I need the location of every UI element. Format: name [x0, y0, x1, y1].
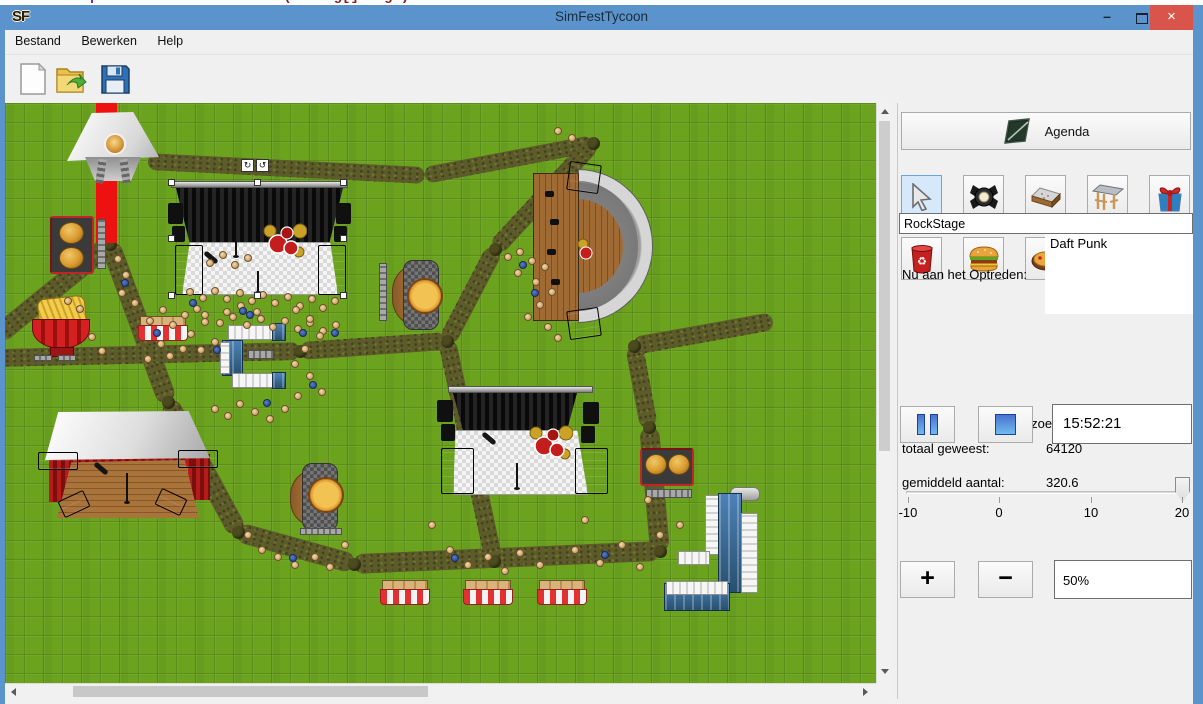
toolbar	[5, 55, 1193, 103]
pause-icon	[930, 414, 938, 435]
scrollbar-corner	[876, 683, 891, 699]
agenda-book-icon	[1003, 117, 1033, 145]
selection-handle[interactable]	[254, 292, 261, 299]
menu-help[interactable]: Help	[149, 30, 191, 48]
close-button[interactable]: ×	[1150, 5, 1193, 30]
minimize-button[interactable]: –	[1092, 5, 1122, 30]
scroll-down-icon[interactable]	[881, 669, 889, 674]
pause-button[interactable]	[900, 406, 955, 443]
tool-stage-floor[interactable]	[1025, 175, 1066, 218]
content-area: ↻ ↺ Agenda	[5, 103, 1193, 704]
selection-handle[interactable]	[340, 179, 347, 186]
map-horizontal-scrollbar[interactable]	[5, 683, 876, 699]
stop-button[interactable]	[978, 406, 1033, 443]
stage-floor-icon	[1030, 184, 1062, 210]
spotlight-icon	[969, 183, 999, 211]
speed-slider-track[interactable]	[906, 491, 1188, 494]
zoom-out-button[interactable]: −	[978, 561, 1033, 598]
selection-handle[interactable]	[168, 292, 175, 299]
selection-layer	[5, 103, 876, 683]
horizontal-scroll-thumb[interactable]	[73, 686, 428, 697]
map-vertical-scrollbar[interactable]	[876, 103, 891, 683]
slider-label-0: 0	[981, 505, 1017, 520]
pause-icon	[917, 414, 925, 435]
titlebar[interactable]: SF SimFestTycoon – ×	[0, 5, 1203, 30]
selection-handle[interactable]	[168, 179, 175, 186]
stop-icon	[995, 414, 1016, 435]
scroll-left-icon[interactable]	[11, 688, 16, 696]
cursor-icon	[909, 183, 935, 211]
selection-handle[interactable]	[254, 179, 261, 186]
zoom-level-field[interactable]: 50%	[1054, 560, 1192, 599]
slider-tick	[1182, 497, 1183, 503]
menubar: Bestand Bewerken Help	[5, 30, 1193, 55]
avg-visitors-label: gemiddeld aantal:	[902, 475, 1005, 490]
tool-select-cursor[interactable]	[901, 175, 942, 218]
save-file-button[interactable]	[97, 61, 133, 97]
app-window: SF SimFestTycoon – × Bestand Bewerken He…	[0, 5, 1203, 704]
scroll-up-icon[interactable]	[881, 109, 889, 114]
tool-spotlight[interactable]	[963, 175, 1004, 218]
gift-icon	[1155, 182, 1185, 212]
tool-gift[interactable]	[1149, 175, 1190, 218]
total-visitors-label: totaal geweest:	[902, 441, 989, 456]
code-line-number: 180	[52, 0, 75, 4]
maximize-icon	[1136, 13, 1148, 24]
selection-handle[interactable]	[340, 292, 347, 299]
map-viewport[interactable]: ↻ ↺	[5, 103, 876, 683]
slider-label-20: 20	[1164, 505, 1200, 520]
stage-roof-icon	[1092, 183, 1124, 211]
zoom-in-button[interactable]: +	[900, 561, 955, 598]
new-file-button[interactable]	[15, 61, 51, 97]
vertical-scroll-thumb[interactable]	[879, 121, 890, 451]
agenda-label: Agenda	[1045, 124, 1090, 139]
tool-stage-roof[interactable]	[1087, 175, 1128, 218]
svg-text:♻: ♻	[917, 256, 927, 268]
now-performing-label: Nu aan het Optreden:	[902, 267, 1027, 282]
selection-handle[interactable]	[340, 235, 347, 242]
slider-label-10: 10	[1073, 505, 1109, 520]
save-floppy-icon	[97, 61, 133, 97]
slider-tick	[1091, 497, 1092, 503]
scroll-right-icon[interactable]	[863, 688, 868, 696]
new-file-icon	[15, 61, 51, 97]
window-title: SimFestTycoon	[0, 9, 1203, 24]
slider-label-neg10: -10	[890, 505, 926, 520]
slider-tick	[908, 497, 909, 503]
menu-bestand[interactable]: Bestand	[7, 30, 69, 48]
open-folder-icon	[53, 61, 89, 97]
menu-bewerken[interactable]: Bewerken	[73, 30, 145, 48]
clock-display: 15:52:21	[1052, 404, 1192, 444]
open-file-button[interactable]	[53, 61, 89, 97]
stage-name-field[interactable]	[899, 213, 1193, 234]
tool-row-1	[901, 175, 1190, 218]
slider-tick	[999, 497, 1000, 503]
side-panel: Agenda	[897, 103, 1193, 699]
selection-handle[interactable]	[168, 235, 175, 242]
now-performing-box: Daft Punk	[1045, 234, 1193, 314]
agenda-button[interactable]: Agenda	[901, 112, 1191, 150]
avg-visitors-value: 320.6	[1046, 475, 1079, 490]
